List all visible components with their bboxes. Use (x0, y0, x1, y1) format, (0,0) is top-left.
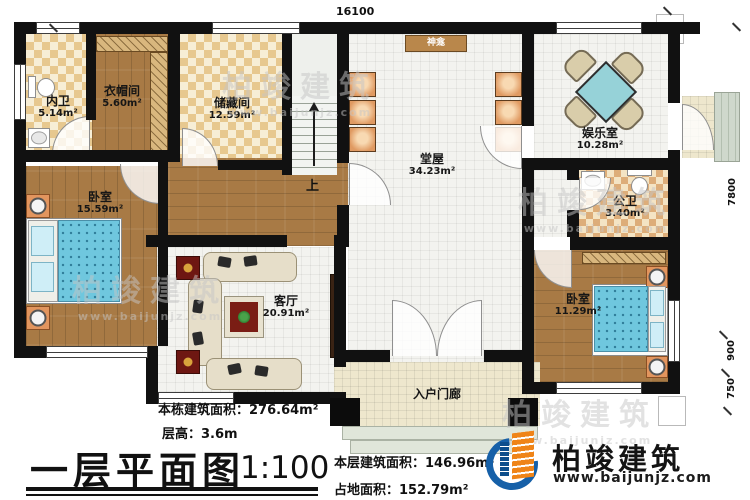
room-area: 11.29m² (555, 306, 601, 318)
shrine-label: 神龛 (427, 38, 445, 48)
sofa-cushion (217, 256, 232, 268)
porch-pillar-right (508, 398, 538, 426)
window-top-storage (212, 22, 300, 34)
wall-innerbath-cloak (86, 34, 96, 120)
nightstand (26, 194, 50, 218)
wall-hall-bedroomright (522, 250, 534, 382)
side-table (176, 256, 200, 280)
total-building-area-text: 本栋建筑面积：276.64m² (158, 399, 318, 418)
brand-logo-building-icon (500, 442, 509, 476)
sink (28, 128, 50, 148)
sofa-cushion (254, 365, 268, 377)
plant (238, 311, 250, 323)
land-area-text: 占地面积：152.79m² (334, 479, 468, 498)
wall-living-top (146, 235, 287, 247)
dimension-tick (723, 406, 732, 415)
window-right-bedroomright (668, 300, 680, 362)
wall-bedroomleft-corridor (158, 162, 168, 346)
floor-area-text: 本层建筑面积：146.96m² (334, 452, 494, 471)
shrine-table: 神龛 (405, 35, 467, 52)
room-area: 10.28m² (577, 140, 623, 152)
wall-maindoor-left (346, 350, 390, 362)
pillow (31, 226, 54, 256)
wall-bath-left-lower (567, 210, 579, 237)
porch-pillar-left (330, 398, 360, 426)
dimension-tick (719, 330, 728, 339)
title-underline-thick (26, 487, 318, 491)
drawing-scale: 1:100 (240, 450, 329, 486)
room-area: 5.60m² (102, 98, 141, 110)
bedroom-right-wardrobe (582, 252, 666, 264)
room-name: 卧室 (77, 190, 123, 204)
room-name: 公卫 (605, 194, 644, 208)
sofa-cushion (192, 299, 204, 313)
nightstand (646, 356, 668, 378)
room-name: 衣帽间 (102, 84, 141, 98)
bed-left-mattress (58, 220, 120, 302)
room-area: 20.91m² (263, 308, 309, 320)
window-left-innerbath (14, 64, 26, 120)
pillow (650, 322, 664, 348)
room-label-porch: 入户门廊 (413, 385, 461, 402)
dimension-tick (721, 368, 730, 377)
hall-chair (349, 127, 376, 152)
toilet-bowl (631, 177, 648, 195)
sofa-cushion (243, 255, 257, 267)
room-label-storage: 储藏间 12.59m² (209, 96, 255, 122)
wall-storage-stairs (282, 34, 292, 175)
brand-website: www.baijunjz.com (553, 470, 712, 486)
hall-chair (495, 100, 522, 125)
wall-bath-left-upper (567, 170, 579, 180)
hall-chair (349, 100, 376, 125)
wall-bedroomright-top-left (522, 237, 534, 250)
room-label-hall: 堂屋 34.23m² (409, 152, 455, 178)
title-underline-thin (26, 494, 318, 496)
room-label-game-room: 娱乐室 10.28m² (577, 126, 623, 152)
nightstand (26, 306, 50, 330)
room-name: 娱乐室 (577, 126, 623, 140)
dimension-right-7800: 7800 (727, 178, 738, 206)
wall-game-bath (522, 158, 680, 170)
window-top-gameroom (556, 22, 642, 34)
room-name: 内卫 (38, 94, 77, 108)
pillow (31, 262, 54, 292)
room-area: 15.59m² (77, 204, 123, 216)
side-table (176, 350, 200, 374)
hall-chair (349, 72, 376, 97)
stairs-up-label: 上 (306, 175, 319, 194)
room-label-cloakroom: 衣帽间 5.60m² (102, 84, 141, 110)
wall-living-hall (334, 235, 346, 367)
cloakroom-wardrobe-side (150, 52, 168, 158)
dimension-tick (732, 22, 741, 31)
wall-bedroomright-top (570, 237, 680, 250)
room-label-bedroom-left: 卧室 15.59m² (77, 190, 123, 216)
room-name: 客厅 (263, 294, 309, 308)
room-area: 12.59m² (209, 110, 255, 122)
cloakroom-wardrobe-top (96, 36, 168, 52)
side-porch-steps (714, 92, 740, 162)
room-label-bedroom-right: 卧室 11.29m² (555, 292, 601, 318)
room-name: 储藏间 (209, 96, 255, 110)
stair-arrow-head-icon (309, 102, 319, 111)
dimension-right-900: 900 (726, 340, 737, 361)
room-area: 3.40m² (605, 208, 644, 220)
window-top-innerbath (36, 22, 80, 34)
wall-hall-game (522, 22, 534, 126)
sofa-cushion (192, 331, 204, 346)
dimension-right-750: 750 (726, 378, 737, 399)
window-bedroomright-bottom (556, 382, 642, 394)
toilet-tank (28, 76, 36, 98)
room-area: 34.23m² (409, 166, 455, 178)
hall-chair (495, 72, 522, 97)
pillow (650, 290, 664, 316)
wall-hall-right-mid (522, 170, 534, 237)
window-bedroomleft-bottom (46, 346, 148, 358)
room-label-living-room: 客厅 20.91m² (263, 294, 309, 320)
wall-hall-left-upper (337, 22, 349, 163)
wall-suite-horizontal (14, 150, 168, 162)
dimension-top-width: 16100 (336, 5, 374, 18)
wall-right-upper (668, 22, 680, 103)
room-label-public-bath: 公卫 3.40m² (605, 194, 644, 220)
platform-bottom-right (658, 396, 686, 426)
room-name: 卧室 (555, 292, 601, 306)
room-name: 堂屋 (409, 152, 455, 166)
room-label-inner-bath: 内卫 5.14m² (38, 94, 77, 120)
room-area: 5.14m² (38, 108, 77, 120)
bed-right-mattress (594, 286, 648, 352)
nightstand (646, 266, 668, 288)
brand-logo-building-icon (512, 431, 534, 480)
floorplan-canvas: 上 (0, 0, 750, 500)
wall-storage-bottom (218, 160, 282, 170)
stair-arrow-line (313, 110, 315, 166)
wall-cloak-storage (168, 34, 180, 162)
